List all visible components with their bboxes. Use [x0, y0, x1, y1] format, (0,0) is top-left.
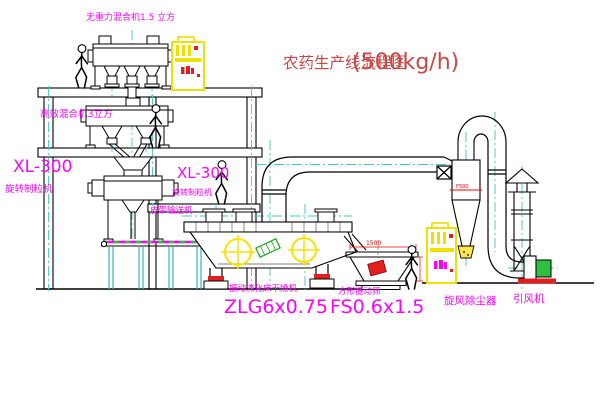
label-dryer-name: 振动流化床干燥机 [229, 283, 298, 294]
cad-drawing-pesticide-line: 1500 541 F500 [0, 0, 600, 403]
induced-draft-fan [518, 256, 556, 284]
label-granulator-left-model: XL-300 [13, 157, 72, 177]
label-fan: 引风机 [513, 292, 545, 305]
control-cabinet-top [172, 37, 204, 90]
label-gravity-mixer: 无重力混合机1.5 立方 [86, 11, 175, 23]
control-cabinet-right [427, 223, 456, 283]
person-top-floor [76, 45, 88, 88]
label-dryer-model: ZLG6x0.75 [224, 296, 328, 318]
fan-motor [536, 260, 551, 277]
drawing-canvas: 1500 541 F500 [0, 0, 600, 403]
fan-base [518, 279, 556, 284]
damper-box [437, 166, 451, 179]
sieve-length-dim: 1500 [366, 240, 381, 247]
vibrating-sieve: 1500 541 [346, 240, 431, 290]
cyclone-outlet [458, 246, 474, 258]
down-pipe [128, 87, 136, 98]
fluid-bed-dryer [184, 209, 366, 289]
label-granulator-left-name: 旋转制粒机 [5, 183, 53, 195]
label-cyclone: 旋风除尘器 [444, 294, 497, 307]
label-granulator-mid-name: 旋转制粒机 [172, 187, 212, 197]
label-granulator-mid-model: XL-300 [177, 164, 229, 182]
cyclone-dim: F500 [456, 184, 468, 190]
title-capacity: (500kg/h) [352, 50, 459, 75]
exhaust-duct [262, 157, 452, 228]
label-high-mixer: 高效混合机3立方 [40, 108, 113, 120]
granulator [88, 157, 178, 242]
drawing-title: 农药生产线流程图 (500kg/h) [283, 50, 459, 75]
label-belt-conveyor: 皮带输送机 [150, 205, 193, 216]
label-sieve-model: FS0.6x1.5 [330, 296, 424, 318]
